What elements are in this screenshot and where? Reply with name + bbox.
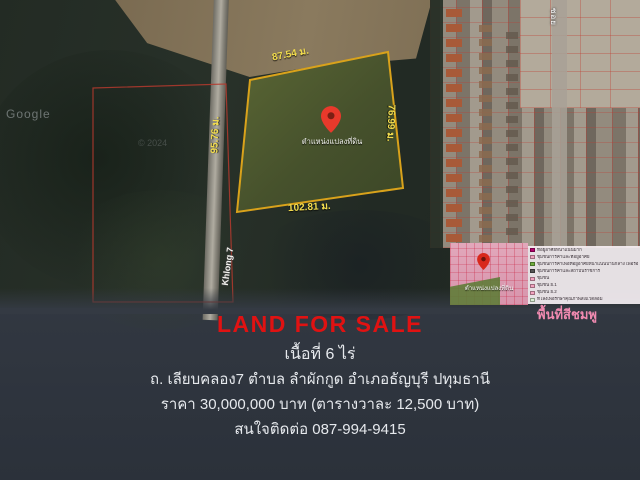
soi-label: ซอย	[549, 8, 557, 26]
land-plot-polygon	[237, 52, 403, 212]
legend-row: ชุมชนการค้าเพื่อที่อยู่อาศัยหนาแน่นปานกล…	[530, 262, 638, 267]
legend-label: ชุมชนการค้าเพื่อที่อยู่อาศัยหนาแน่นปานกล…	[537, 262, 638, 267]
zoning-legend: ที่อยู่อาศัยหนาแน่นมาก ชุมชนการค้าและที่…	[528, 246, 640, 304]
land-area-text: เนื้อที่ 6 ไร่	[0, 342, 640, 367]
location-pin-icon	[321, 106, 341, 138]
legend-label: ชุมชนการค้าและสถาบันราชการ	[537, 269, 600, 274]
legend-row: ชุมชน ย.1	[530, 283, 638, 288]
legend-label: ที่อยู่อาศัยหนาแน่นมาก	[537, 248, 582, 253]
legend-label: ชุมชน ย.2	[537, 290, 557, 295]
inset-pin-label: ตำแหน่งแปลงที่ดิน	[450, 283, 528, 293]
legend-swatch	[530, 255, 535, 259]
legend-row: ชุมชนการค้าและสถาบันราชการ	[530, 269, 638, 274]
legend-swatch	[530, 298, 535, 302]
legend-label: ชุมชน ย.1	[537, 283, 557, 288]
copyright-watermark: © 2024	[138, 139, 167, 148]
legend-row: ชุมชน ย.2	[530, 290, 638, 295]
contact-text: สนใจติดต่อ 087-994-9415	[0, 417, 640, 441]
legend-swatch	[530, 284, 535, 288]
legend-row: ชุมชน	[530, 276, 638, 281]
legend-swatch	[530, 262, 535, 266]
legend-swatch	[530, 277, 535, 281]
legend-swatch	[530, 291, 535, 295]
google-watermark: Google	[6, 108, 51, 120]
listing-image: 87.54 ม. 76.99 ม. 102.81 ม. 95.76 ม. Khl…	[0, 0, 640, 480]
legend-label: ชุมชนการค้าและที่อยู่อาศัย	[537, 255, 589, 260]
zoning-inset-map: ตำแหน่งแปลงที่ดิน	[450, 243, 528, 305]
legend-row: ชุมชนการค้าและที่อยู่อาศัย	[530, 255, 638, 260]
inset-pin-icon	[477, 253, 490, 275]
measurement-right: 76.99 ม.	[384, 95, 396, 151]
pin-label: ตำแหน่งแปลงที่ดิน	[284, 138, 380, 146]
legend-row: ที่โล่งเพื่อรักษาคุณภาพสิ่งแวดล้อม	[530, 297, 638, 302]
price-text: ราคา 30,000,000 บาท (ตารางวาละ 12,500 บา…	[0, 392, 640, 416]
legend-label: ที่โล่งเพื่อรักษาคุณภาพสิ่งแวดล้อม	[537, 297, 603, 302]
legend-row: ที่อยู่อาศัยหนาแน่นมาก	[530, 248, 638, 253]
headline: LAND FOR SALE	[0, 311, 640, 338]
measurement-left: 95.76 ม.	[210, 109, 222, 161]
legend-swatch	[530, 248, 535, 252]
legend-swatch	[530, 269, 535, 273]
legend-label: ชุมชน	[537, 276, 549, 281]
address-text: ถ. เลียบคลอง7 ตำบล ลำผักกูด อำเภอธัญบุรี…	[0, 367, 640, 391]
